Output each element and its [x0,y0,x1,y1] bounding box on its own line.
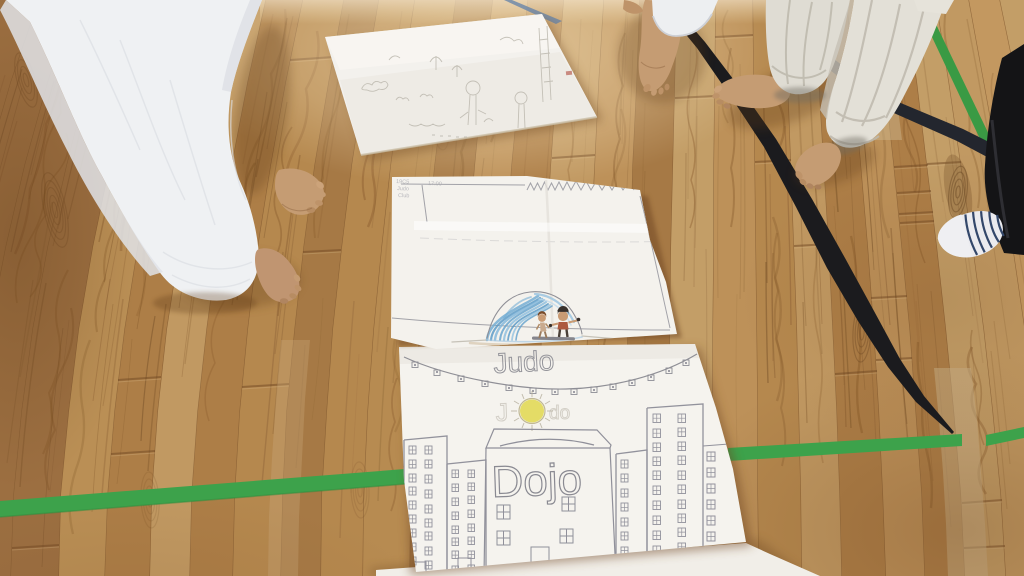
svg-text:19C5: 19C5 [396,179,409,185]
svg-text:Judo: Judo [493,345,555,379]
svg-text:17:00: 17:00 [428,181,442,187]
svg-text:Judo: Judo [397,186,409,192]
svg-text:do: do [549,403,570,424]
svg-text:Club: Club [398,193,410,199]
svg-text:J: J [495,399,508,427]
